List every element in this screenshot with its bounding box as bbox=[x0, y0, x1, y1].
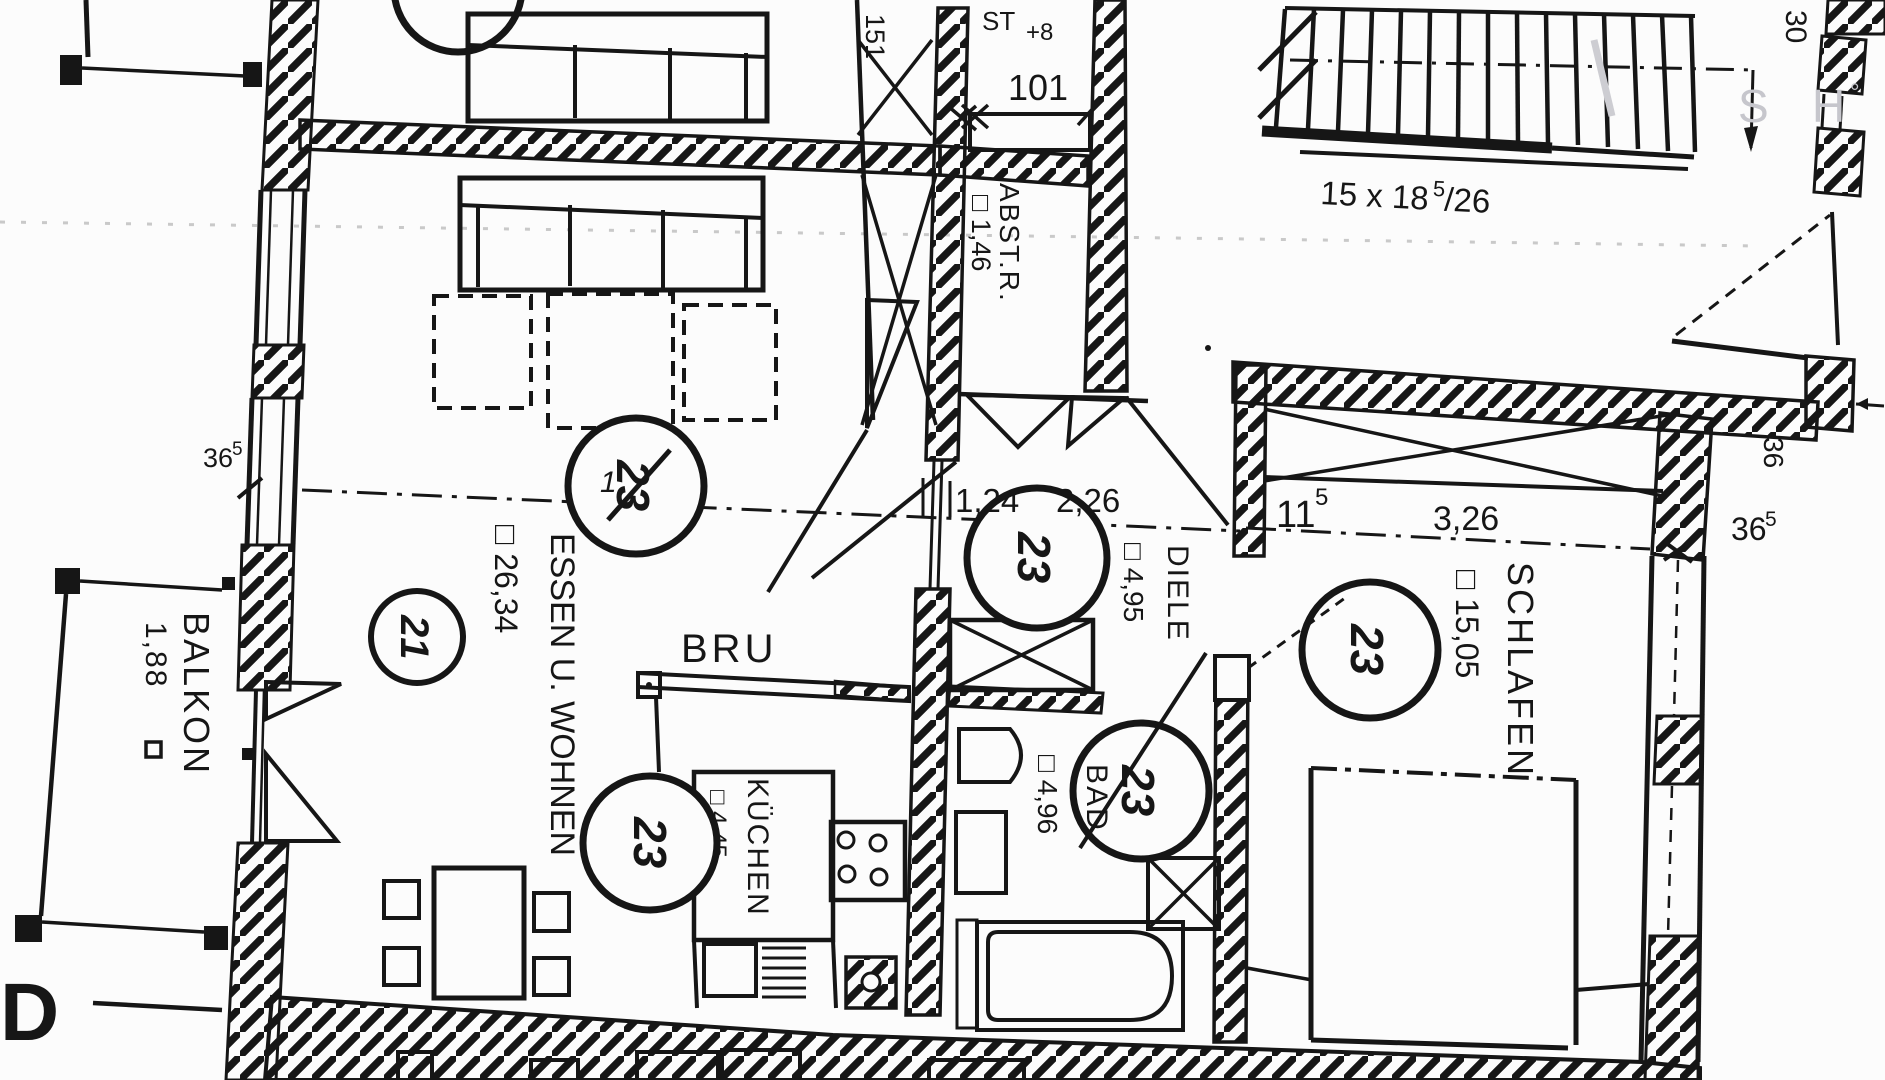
svg-text:ABST.R.: ABST.R. bbox=[994, 183, 1025, 303]
svg-text:/26: /26 bbox=[1443, 181, 1491, 220]
svg-text:DIELE: DIELE bbox=[1161, 545, 1194, 642]
svg-text:15 x 18: 15 x 18 bbox=[1320, 174, 1430, 217]
svg-text:KÜCHEN: KÜCHEN bbox=[741, 778, 774, 917]
svg-text:1,24: 1,24 bbox=[955, 482, 1019, 519]
svg-text:23: 23 bbox=[1008, 531, 1060, 584]
svg-text:BRU: BRU bbox=[681, 627, 777, 671]
svg-text:□ 4,96: □ 4,96 bbox=[1032, 755, 1063, 834]
svg-text:101: 101 bbox=[1008, 67, 1068, 108]
svg-text:°: ° bbox=[1850, 79, 1860, 106]
svg-text:S: S bbox=[1738, 80, 1769, 132]
svg-text:36: 36 bbox=[203, 443, 233, 473]
svg-text:5: 5 bbox=[1315, 484, 1328, 511]
svg-text:5: 5 bbox=[232, 439, 243, 460]
svg-text:151: 151 bbox=[860, 14, 890, 59]
svg-text:H: H bbox=[1812, 80, 1845, 132]
svg-text:□ 4,95: □ 4,95 bbox=[1118, 543, 1149, 622]
svg-text:ESSEN U. WOHNEN: ESSEN U. WOHNEN bbox=[543, 533, 581, 856]
svg-text:SCHLAFEN: SCHLAFEN bbox=[1500, 562, 1541, 778]
svg-text:11: 11 bbox=[1276, 494, 1315, 536]
svg-text:□ 26,34: □ 26,34 bbox=[488, 525, 524, 633]
svg-text:1,88: 1,88 bbox=[139, 622, 172, 688]
svg-text:BAD: BAD bbox=[1080, 764, 1113, 832]
svg-text:23: 23 bbox=[1341, 623, 1393, 676]
svg-text:5: 5 bbox=[1765, 508, 1777, 531]
svg-text:□ 15,05: □ 15,05 bbox=[1449, 570, 1485, 678]
svg-text:D: D bbox=[0, 967, 59, 1058]
svg-text:23: 23 bbox=[1112, 764, 1164, 817]
svg-text:□ 1,46: □ 1,46 bbox=[966, 195, 996, 271]
svg-text:3,26: 3,26 bbox=[1433, 500, 1499, 538]
svg-text:2,26: 2,26 bbox=[1056, 482, 1120, 519]
svg-text:21: 21 bbox=[392, 614, 436, 660]
svg-text:ST: ST bbox=[982, 6, 1015, 36]
svg-text:1: 1 bbox=[600, 466, 617, 499]
svg-text:+8: +8 bbox=[1026, 19, 1053, 46]
svg-text:36: 36 bbox=[1731, 511, 1767, 547]
svg-text:23: 23 bbox=[624, 816, 676, 869]
svg-text:BALKON: BALKON bbox=[176, 612, 217, 776]
svg-text:36: 36 bbox=[1758, 437, 1789, 468]
svg-text:30: 30 bbox=[1779, 10, 1812, 43]
